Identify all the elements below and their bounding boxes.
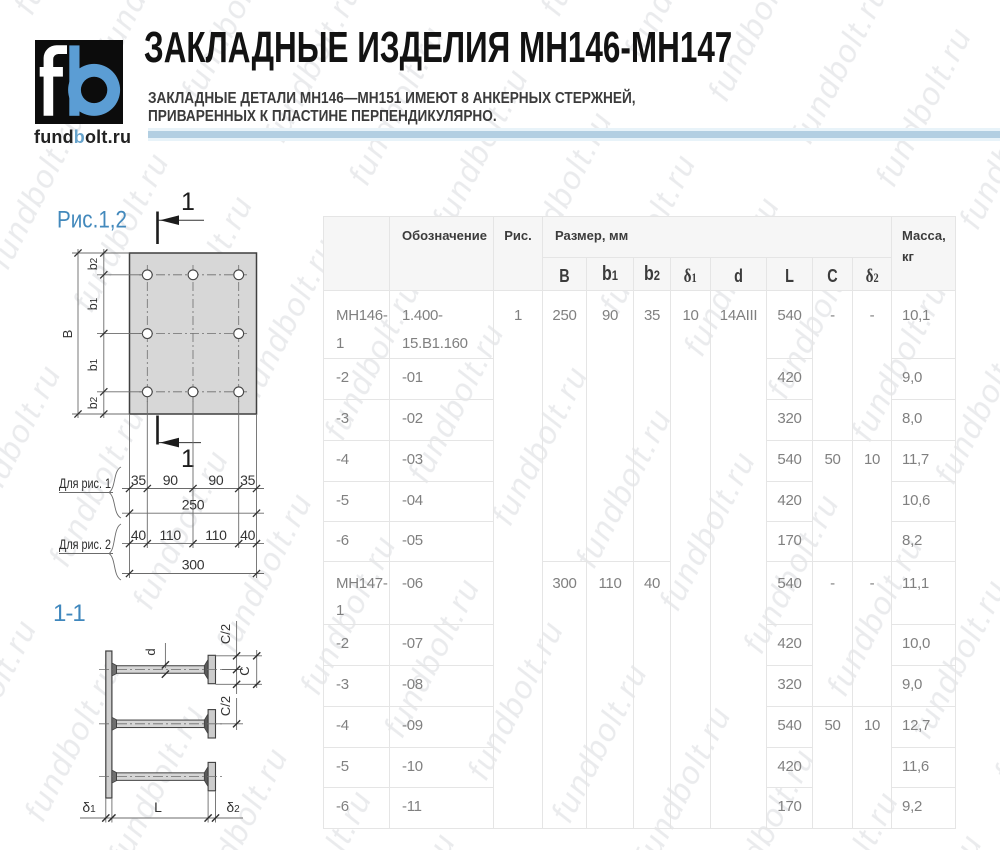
- svg-text:35: 35: [131, 472, 146, 488]
- svg-text:35: 35: [240, 472, 255, 488]
- svg-text:L: L: [154, 799, 162, 815]
- svg-text:b2: b2: [86, 257, 100, 270]
- svg-text:40: 40: [240, 527, 255, 543]
- svg-text:1-1: 1-1: [53, 600, 85, 627]
- svg-text:b1: b1: [86, 358, 100, 371]
- svg-text:C/2: C/2: [218, 624, 233, 644]
- svg-text:110: 110: [159, 527, 181, 543]
- svg-text:1: 1: [181, 188, 195, 216]
- svg-text:C/2: C/2: [218, 696, 233, 716]
- svg-text:δ1: δ1: [82, 799, 96, 815]
- svg-text:Для рис. 1: Для рис. 1: [59, 475, 111, 491]
- svg-text:Для рис. 2: Для рис. 2: [59, 536, 111, 552]
- svg-text:B: B: [60, 330, 75, 339]
- svg-text:d: d: [143, 648, 158, 655]
- svg-text:250: 250: [182, 497, 205, 513]
- svg-text:90: 90: [163, 472, 178, 488]
- svg-text:b1: b1: [86, 297, 100, 310]
- svg-text:90: 90: [208, 472, 223, 488]
- svg-text:b2: b2: [86, 396, 100, 409]
- svg-text:Рис.1,2: Рис.1,2: [57, 207, 127, 234]
- svg-text:300: 300: [182, 557, 205, 573]
- svg-text:40: 40: [131, 527, 146, 543]
- svg-text:δ2: δ2: [226, 799, 240, 815]
- svg-text:C: C: [237, 666, 252, 675]
- svg-text:110: 110: [205, 527, 227, 543]
